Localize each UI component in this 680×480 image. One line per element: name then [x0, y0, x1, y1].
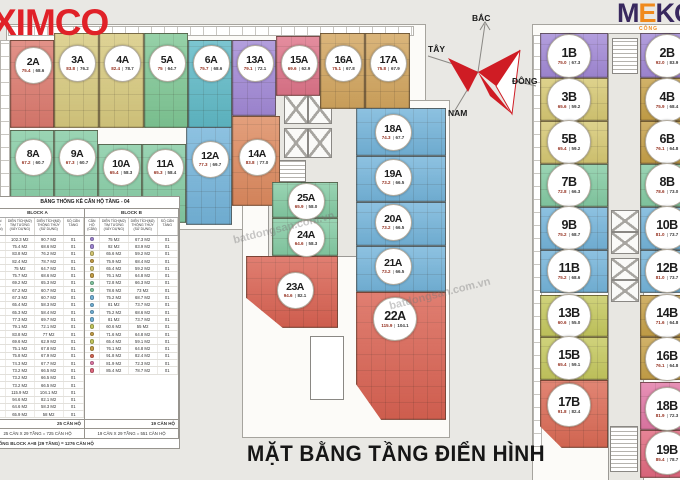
table-row-7A: 69.2 M265.3 M201 — [0, 280, 84, 287]
block-a-label: BLOCK A — [0, 209, 84, 218]
unit-area-gross: 65.3 — [154, 171, 165, 176]
unit-area-gross: 94.6 — [284, 294, 295, 299]
table-row-13B: 60.6 M255 M201 — [85, 324, 178, 331]
unit-color-dot — [90, 303, 95, 308]
table-row-4B: 75.9 M268.4 M201 — [85, 258, 178, 265]
table-grand-total: TỔNG BLOCK A+B (29 TẦNG) = 1276 CĂN HỘ — [0, 438, 179, 448]
unit-area-net: 67.7 — [393, 136, 405, 141]
unit-area-gross: 67.2 — [22, 161, 33, 166]
unit-label: 19A — [384, 169, 402, 180]
unit-color-dot — [90, 251, 95, 256]
unit-area-gross: 75.1 — [332, 67, 343, 72]
unit-area-gross: 65.4 — [558, 363, 569, 368]
table-row-22A: 115.9 M2104.1 M201 — [0, 389, 84, 396]
cell-area-gross: 81.9 M2 — [100, 360, 129, 366]
cell-area-gross: 91.8 M2 — [100, 353, 129, 359]
table-row-19B: 85.4 M278.7 M201 — [85, 367, 178, 374]
unit-area-gross: 75.2 — [558, 233, 569, 238]
unit-area-net: 68.6 — [211, 67, 223, 72]
unit-area-gross: 74.3 — [382, 136, 393, 141]
unit-badge-17B: 17B91.882.4 — [547, 383, 591, 427]
unit-area-gross: 65.9 — [295, 205, 306, 210]
table-row-25A: 65.9 M258 M201 — [0, 411, 84, 418]
unit-color-dot — [90, 288, 95, 293]
table-row-15A: 69.6 M262.9 M201 — [0, 338, 84, 345]
table-col-header: DIỆN TÍCH(M2) THÔNG THỦY (SỬ DỤNG) — [129, 218, 158, 235]
cell-count: 01 — [64, 375, 84, 381]
cell-count: 01 — [158, 338, 178, 344]
unit-label: 11B — [559, 262, 580, 275]
unit-area-net: 64.8 — [667, 364, 679, 369]
cell-area-gross: 83.8 M2 — [6, 251, 35, 257]
cell-area-net: 66.5 M2 — [35, 367, 64, 373]
unit-area-gross: 91.8 — [558, 410, 569, 415]
unit-badge-5B: 5B65.459.2 — [547, 120, 591, 164]
table-row-14A: 83.8 M277 M201 — [0, 331, 84, 338]
unit-area-gross: 72.8 — [558, 190, 569, 195]
unit-label: 22A — [384, 310, 405, 323]
cell-area-gross: 75.7 M2 — [6, 272, 35, 278]
unit-area-gross: 75.4 — [22, 69, 33, 74]
unit-badge-6A: 6A75.768.6 — [193, 45, 230, 82]
unit-badge-9A: 9A67.360.7 — [59, 139, 96, 176]
unit-area-net: 64.8 — [667, 147, 679, 152]
unit-area-gross: 71.6 — [656, 321, 667, 326]
cell-area-gross: 78.6 M2 — [100, 287, 129, 293]
unit-area-net: 76.2 — [77, 67, 89, 72]
unit-area-net: 66.3 — [569, 190, 581, 195]
unit-label: 5A — [161, 55, 173, 66]
unit-label: 15A — [290, 55, 308, 66]
table-row-16A: 75.1 M267.8 M201 — [0, 345, 84, 352]
cell-area-net: 64.8 M2 — [129, 345, 158, 351]
table-row-20A: 73.2 M266.5 M201 — [0, 375, 84, 382]
table-section-block-a: BLOCK A CĂN HỘ (CĂN)DIỆN TÍCH(M2) TIM TƯ… — [0, 209, 85, 438]
cell-area-gross: 65.4 M2 — [100, 338, 129, 344]
table-row-12B: 81 M273.7 M201 — [85, 316, 178, 323]
unit-label: 19B — [656, 444, 677, 457]
unit-badge-10A: 10A65.458.3 — [103, 149, 140, 186]
table-body: 75 M267.3 M20192 M283.9 M20165.6 M259.2 … — [85, 236, 178, 419]
unit-label: 18B — [656, 400, 677, 413]
block-a-subtotal: 25 CĂN HỘ — [0, 419, 84, 428]
unit-color-dot — [90, 295, 95, 300]
unit-label: 16B — [656, 350, 677, 363]
unit-badge-16A: 16A75.167.8 — [325, 45, 362, 82]
table-title: BẢNG THỐNG KÊ CĂN HỘ TẦNG - 04 — [0, 197, 179, 209]
cell-area-net: 66.5 M2 — [35, 375, 64, 381]
unit-area-net: 58.0 — [306, 205, 318, 210]
cell-area-gross: 65.4 M2 — [100, 265, 129, 271]
unit-area-net: 64.8 — [667, 321, 679, 326]
unit-label: 25A — [297, 193, 315, 204]
elevator-icon — [284, 94, 308, 124]
unit-label: 6A — [205, 55, 217, 66]
unit-label: 8B — [660, 176, 675, 189]
cell-count: 01 — [158, 302, 178, 308]
floor-plan-poster: 2A75.468.63A83.876.24A82.478.75A7564.76A… — [0, 0, 680, 480]
unit-area-net: 58.3 — [306, 242, 318, 247]
cell-count: 01 — [64, 389, 84, 395]
unit-label: 13B — [558, 307, 579, 320]
cell-count: 01 — [158, 287, 178, 293]
table-row-17A: 75.8 M267.9 M201 — [0, 353, 84, 360]
table-row-3A: 83.8 M276.2 M201 — [0, 251, 84, 258]
unit-area-net: 67.9 — [388, 67, 400, 72]
unit-badge-2A: 2A75.468.6 — [15, 47, 52, 84]
unit-area-gross: 73.2 — [382, 226, 393, 231]
cell-count: 01 — [64, 382, 84, 388]
table-row-8B: 78.6 M273 M201 — [85, 287, 178, 294]
table-col-header: DIỆN TÍCH(M2) TIM TƯỜNG (XÂY DỰNG) — [6, 218, 35, 235]
cell-count: 01 — [64, 345, 84, 351]
unit-badge-13A: 13A79.172.1 — [237, 45, 274, 82]
unit-color-dot — [90, 310, 95, 315]
cell-area-gross: 75 M2 — [6, 265, 35, 271]
unit-area-net: 59.2 — [569, 147, 581, 152]
unit-area-net: 72.1 — [255, 67, 267, 72]
table-row-9A: 67.3 M260.7 M201 — [0, 294, 84, 301]
elevator-icon — [611, 280, 639, 302]
cell-area-net: 69.7 M2 — [35, 316, 64, 322]
compass-north-label: BẮC — [472, 13, 490, 23]
stair-core-icon — [612, 38, 638, 74]
ximco-logo: XIMCO — [0, 2, 108, 44]
unit-badge-11B: 11B75.268.6 — [547, 249, 591, 293]
unit-badge-3A: 3A83.876.2 — [59, 45, 96, 82]
cell-area-net: 104.1 M2 — [35, 389, 64, 395]
table-row-6A: 75.7 M268.6 M201 — [0, 272, 84, 279]
cell-area-net: 55 M2 — [129, 324, 158, 330]
table-row-10B: 81 M273.7 M201 — [85, 302, 178, 309]
cell-count: 01 — [158, 309, 178, 315]
unit-label: 12B — [656, 262, 677, 275]
unit-color-dot — [90, 259, 95, 264]
unit-color-dot — [90, 244, 95, 249]
unit-area-net: 104.1 — [394, 324, 408, 329]
cell-area-net: 68.6 M2 — [35, 272, 64, 278]
meko-logo-m: M — [617, 0, 639, 28]
service-shaft — [310, 336, 344, 400]
cell-area-net: 76.2 M2 — [35, 251, 64, 257]
cell-count: 01 — [64, 287, 84, 293]
unit-label: 12A — [201, 151, 219, 162]
cell-count: 01 — [158, 360, 178, 366]
cell-count: 01 — [64, 324, 84, 330]
unit-area-net: 73.7 — [667, 276, 679, 281]
meko-logo-ko: KO — [656, 0, 680, 28]
unit-area-gross: 83.8 — [246, 161, 257, 166]
unit-area-net: 67.3 — [569, 61, 581, 66]
core-b-corridor — [608, 33, 644, 480]
unit-area-net: 58.3 — [121, 171, 133, 176]
unit-label: 21A — [384, 258, 402, 269]
unit-area-net: 83.9 — [667, 61, 679, 66]
cell-count: 01 — [158, 345, 178, 351]
cell-area-net: 77 M2 — [35, 331, 64, 337]
table-header-row: CĂN HỘ (CĂN)DIỆN TÍCH(M2) TIM TƯỜNG (XÂY… — [0, 218, 84, 236]
cell-count: 01 — [64, 353, 84, 359]
unit-label: 9B — [562, 219, 577, 232]
cell-count: 01 — [158, 280, 178, 286]
unit-label: 10B — [656, 219, 677, 232]
cell-area-net: 72.1 M2 — [35, 324, 64, 330]
cell-area-net: 59.2 M2 — [129, 265, 158, 271]
unit-area-gross: 79.1 — [244, 67, 255, 72]
unit-area-net: 59.2 — [569, 105, 581, 110]
table-row-18A: 74.3 M267.7 M201 — [0, 360, 84, 367]
unit-area-gross: 73.2 — [382, 270, 393, 275]
cell-count: 01 — [158, 236, 178, 242]
unit-area-gross: 75.2 — [558, 276, 569, 281]
cell-area-gross: 74.3 M2 — [6, 360, 35, 366]
cell-area-gross: 67.3 M2 — [6, 294, 35, 300]
cell-area-net: 62.9 M2 — [35, 338, 64, 344]
cell-count: 01 — [64, 243, 84, 249]
cell-area-net: 78.7 M2 — [129, 367, 158, 373]
cell-area-gross: 75.2 M2 — [100, 294, 129, 300]
table-row-23A: 94.6 M282.1 M201 — [0, 397, 84, 404]
elevator-icon — [308, 128, 332, 158]
unit-area-gross: 60.6 — [558, 321, 569, 326]
unit-badge-15A: 15A69.662.9 — [281, 45, 318, 82]
unit-label: 8A — [27, 149, 39, 160]
compass-rose: BẮC TÂY ĐÔNG NAM — [424, 10, 540, 118]
compass-south-label: NAM — [448, 108, 467, 118]
unit-area-net: 78.7 — [667, 458, 679, 463]
cell-area-net: 67.7 M2 — [35, 360, 64, 366]
unit-area-net: 55.0 — [569, 321, 581, 326]
table-row-13A: 79.1 M272.1 M201 — [0, 324, 84, 331]
unit-area-gross: 69.6 — [288, 67, 299, 72]
cell-count: 01 — [64, 309, 84, 315]
table-row-15B: 65.4 M259.1 M201 — [85, 338, 178, 345]
cell-count: 01 — [64, 272, 84, 278]
unit-label: 11A — [156, 159, 173, 170]
table-row-8A: 67.2 M260.7 M201 — [0, 287, 84, 294]
cell-count: 01 — [158, 353, 178, 359]
unit-area-net: 68.6 — [569, 276, 581, 281]
cell-area-net: 58 M2 — [35, 411, 64, 417]
cell-count: 01 — [64, 251, 84, 257]
cell-area-gross: 83.8 M2 — [6, 331, 35, 337]
unit-area-gross: 81.0 — [656, 233, 667, 238]
elevator-icon — [611, 258, 639, 280]
table-row-5A: 75 M264.7 M201 — [0, 265, 84, 272]
table-row-21A: 73.2 M266.5 M201 — [0, 382, 84, 389]
cell-area-net: 59.1 M2 — [129, 338, 158, 344]
table-row-24A: 64.6 M258.3 M201 — [0, 404, 84, 411]
cell-count: 01 — [158, 294, 178, 300]
unit-area-gross: 76.1 — [656, 147, 667, 152]
table-row-4A: 82.4 M278.7 M201 — [0, 258, 84, 265]
cell-area-net: 67.8 M2 — [35, 345, 64, 351]
cell-area-net: 66.5 M2 — [35, 382, 64, 388]
unit-badge-4A: 4A82.478.7 — [104, 45, 141, 82]
unit-area-gross: 65.4 — [558, 147, 569, 152]
unit-badge-17A: 17A75.867.9 — [370, 45, 407, 82]
cell-count: 01 — [64, 294, 84, 300]
unit-label: 4A — [116, 55, 128, 66]
cell-area-net: 64.8 M2 — [129, 272, 158, 278]
cell-area-gross: 75.2 M2 — [100, 309, 129, 315]
unit-area-gross: 73.2 — [382, 181, 393, 186]
table-col-header: CĂN HỘ (CĂN) — [85, 218, 100, 235]
cell-area-net: 82.4 M2 — [129, 353, 158, 359]
unit-label: 2B — [660, 47, 675, 60]
unit-area-net: 58.4 — [165, 171, 177, 176]
cell-area-net: 83.9 M2 — [129, 243, 158, 249]
cell-area-net: 58.4 M2 — [35, 309, 64, 315]
cell-area-gross: 102.3 M2 — [6, 236, 35, 242]
elevator-icon — [611, 232, 639, 254]
unit-area-net: 72.3 — [667, 414, 679, 419]
cell-count: 01 — [64, 331, 84, 337]
cell-area-gross: 75.1 M2 — [6, 345, 35, 351]
unit-badge-20A: 20A73.266.5 — [375, 204, 412, 241]
cell-area-net: 72.3 M2 — [129, 360, 158, 366]
cell-area-net: 73.7 M2 — [129, 302, 158, 308]
cell-area-gross: 77.3 M2 — [6, 316, 35, 322]
table-row-3B: 65.6 M259.2 M201 — [85, 251, 178, 258]
unit-badge-5A: 5A7564.7 — [149, 45, 186, 82]
cell-count: 01 — [158, 251, 178, 257]
meko-logo-e: E — [638, 0, 655, 28]
cell-count: 01 — [64, 302, 84, 308]
unit-area-net: 68.6 — [33, 69, 45, 74]
compass-star — [448, 58, 478, 92]
cell-area-gross: 65.9 M2 — [6, 411, 35, 417]
unit-color-dot — [90, 237, 95, 242]
unit-area-gross: 77.3 — [199, 163, 210, 168]
unit-area-net: 60.7 — [33, 161, 45, 166]
unit-area-gross: 83.8 — [66, 67, 77, 72]
table-row-14B: 71.6 M264.8 M201 — [85, 331, 178, 338]
cell-count: 01 — [64, 411, 84, 417]
unit-area-gross: 78.6 — [656, 190, 667, 195]
elevator-icon — [284, 128, 308, 158]
cell-area-net: 60.7 M2 — [35, 287, 64, 293]
table-row-12A: 77.3 M269.7 M201 — [0, 316, 84, 323]
cell-area-net: 73 M2 — [129, 287, 158, 293]
cell-area-net: 64.8 M2 — [129, 331, 158, 337]
unit-area-gross: 81.9 — [656, 414, 667, 419]
unit-area-net: 67.8 — [343, 67, 355, 72]
unit-area-net: 73.7 — [667, 233, 679, 238]
unit-badge-18A: 18A74.367.7 — [375, 114, 412, 151]
unit-color-dot — [90, 339, 95, 344]
cell-area-net: 60.7 M2 — [35, 294, 64, 300]
cell-area-net: 64.7 M2 — [35, 265, 64, 271]
unit-area-net: 82.1 — [295, 294, 307, 299]
cell-area-gross: 75.4 M2 — [6, 243, 35, 249]
unit-area-net: 66.5 — [393, 181, 405, 186]
unit-area-net: 62.9 — [299, 67, 311, 72]
cell-area-net: 59.2 M2 — [129, 251, 158, 257]
table-row-11A: 65.3 M258.4 M201 — [0, 309, 84, 316]
cell-area-gross: 71.6 M2 — [100, 331, 129, 337]
cell-count: 01 — [158, 265, 178, 271]
cell-area-gross: 92 M2 — [100, 243, 129, 249]
table-row-1B: 75 M267.3 M201 — [85, 236, 178, 243]
unit-label: 9A — [71, 149, 83, 160]
unit-area-gross: 75.7 — [200, 67, 211, 72]
table-row-18B: 81.9 M272.3 M201 — [85, 360, 178, 367]
table-row-7B: 72.8 M266.3 M201 — [85, 280, 178, 287]
cell-area-gross: 82.4 M2 — [6, 258, 35, 264]
table-row-6B: 76.1 M264.8 M201 — [85, 272, 178, 279]
cell-area-gross: 115.9 M2 — [6, 389, 35, 395]
unit-label: 20A — [384, 214, 402, 225]
unit-area-gross: 76.1 — [656, 364, 667, 369]
unit-label: 14A — [248, 149, 266, 160]
cell-area-gross: 73.2 M2 — [6, 367, 35, 373]
table-col-header: DIỆN TÍCH(M2) TIM TƯỜNG (XÂY DỰNG) — [100, 218, 129, 235]
unit-area-gross: 85.4 — [656, 458, 667, 463]
stair-core-icon — [276, 160, 306, 182]
cell-count: 01 — [64, 236, 84, 242]
unit-badge-3B: 3B65.659.2 — [547, 78, 591, 122]
cell-area-gross: 60.6 M2 — [100, 324, 129, 330]
unit-area-gross: 75.0 — [558, 61, 569, 66]
unit-color-dot — [90, 361, 95, 366]
cell-area-net: 68.4 M2 — [129, 258, 158, 264]
unit-color-dot — [90, 273, 95, 278]
unit-area-gross: 75.9 — [656, 105, 667, 110]
cell-area-net: 68.6 M2 — [129, 309, 158, 315]
block-a-formula: 25 CĂN X 29 TẦNG = 725 CĂN HỘ — [0, 428, 84, 438]
unit-area-net: 69.7 — [210, 163, 222, 168]
unit-label: 17B — [558, 396, 579, 409]
unit-area-gross: 65.4 — [110, 171, 121, 176]
table-row-16B: 76.1 M264.8 M201 — [85, 345, 178, 352]
unit-label: 24A — [297, 230, 315, 241]
unit-label: 3B — [562, 91, 577, 104]
cell-area-gross: 69.6 M2 — [6, 338, 35, 344]
unit-badge-14A: 14A83.877.0 — [239, 139, 276, 176]
cell-count: 01 — [64, 404, 84, 410]
table-row-10A: 65.4 M258.3 M201 — [0, 302, 84, 309]
unit-color-dot — [90, 317, 95, 322]
table-row-19A: 73.2 M266.5 M201 — [0, 367, 84, 374]
cell-count: 01 — [64, 265, 84, 271]
unit-label: 16A — [335, 55, 353, 66]
unit-area-net: 64.7 — [165, 67, 177, 72]
unit-label: 1B — [562, 47, 577, 60]
unit-area-net: 68.7 — [569, 233, 581, 238]
cell-count: 01 — [64, 338, 84, 344]
table-row-9B: 75.2 M268.7 M201 — [85, 294, 178, 301]
cell-area-net: 65.3 M2 — [35, 280, 64, 286]
unit-badge-19A: 19A73.266.5 — [375, 159, 412, 196]
cell-area-gross: 81 M2 — [100, 316, 129, 322]
block-b-label: BLOCK B — [85, 209, 178, 218]
unit-area-gross: 82.4 — [111, 67, 122, 72]
meko-logo: MEKO CÔNG — [617, 0, 680, 32]
table-header-row: CĂN HỘ (CĂN)DIỆN TÍCH(M2) TIM TƯỜNG (XÂY… — [85, 218, 178, 236]
cell-area-gross: 65.4 M2 — [6, 302, 35, 308]
unit-area-net: 73.0 — [667, 190, 679, 195]
unit-area-net: 60.7 — [77, 161, 89, 166]
table-col-header: SỐ CĂN TẦNG — [64, 218, 84, 235]
unit-label: 7B — [562, 176, 577, 189]
unit-area-net: 78.7 — [122, 67, 134, 72]
table-col-header: DIỆN TÍCH(M2) THÔNG THỦY (SỬ DỤNG) — [35, 218, 64, 235]
unit-area-net: 68.4 — [667, 105, 679, 110]
unit-label: 15B — [558, 349, 579, 362]
unit-label: 4B — [660, 91, 675, 104]
cell-area-gross: 75.9 M2 — [100, 258, 129, 264]
